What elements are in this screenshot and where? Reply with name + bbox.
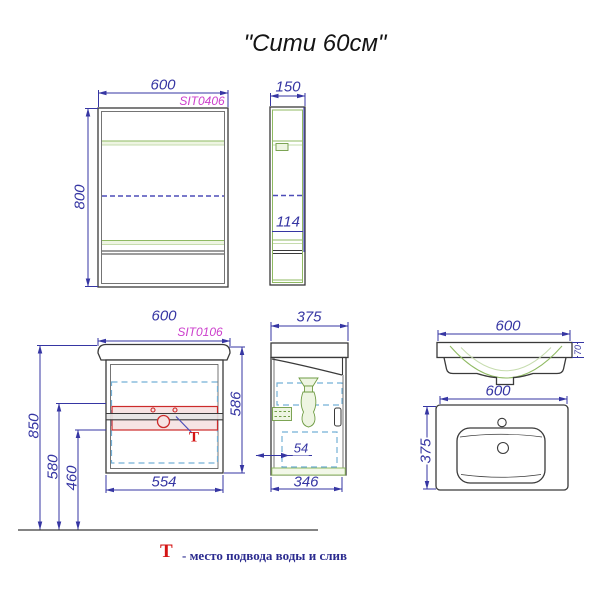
drain-hole: [158, 416, 170, 428]
vanity-drain-height-dim: 460: [64, 465, 81, 490]
mirror-cabinet-side-view: [270, 93, 305, 285]
page-title: "Сити 60см": [244, 30, 387, 58]
vanity-door-offset-dim: 54: [293, 441, 309, 456]
vanity-body-height-dim: 586: [228, 391, 245, 416]
mirror-shelf-dim: 114: [276, 214, 300, 231]
vanity-depth-dim: 375: [296, 309, 321, 326]
technical-drawing-canvas: "Сити 60см" 600 SIT0406 800 150 114 600 …: [0, 0, 600, 600]
sink-top-width-dim: 600: [485, 383, 510, 400]
vanity-inner-width-dim: 554: [151, 474, 176, 491]
sink-rim-height-dim: 70: [573, 344, 583, 356]
mirror-width-dim: 600: [150, 77, 175, 94]
vanity-code-label: SIT0106: [177, 325, 222, 339]
hinge: [273, 408, 292, 421]
overflow-hole: [498, 443, 509, 454]
vanity-width-dim: 600: [151, 308, 176, 325]
sink-front-width-dim: 600: [495, 318, 520, 335]
legend-text: - место подвода воды и слив: [182, 548, 347, 564]
mirror-height-dim: 800: [72, 184, 89, 209]
vanity-side-view: [256, 322, 348, 492]
legend-symbol: Т: [160, 541, 173, 563]
water-supply-marker: Т: [189, 430, 199, 447]
vanity-front-view: [37, 338, 245, 530]
vanity-total-height-dim: 850: [26, 413, 43, 438]
mirror-depth-dim: 150: [275, 79, 300, 96]
mirror-cabinet-front-view: [85, 90, 228, 287]
sink-top-view: [423, 396, 568, 490]
vanity-supply-height-dim: 580: [45, 454, 62, 479]
sink-top-depth-dim: 375: [418, 437, 435, 464]
faucet-hole: [498, 418, 506, 426]
mirror-code-label: SIT0406: [179, 94, 224, 108]
sink-front-view: [437, 330, 584, 385]
vanity-body-depth-dim: 346: [293, 474, 318, 491]
